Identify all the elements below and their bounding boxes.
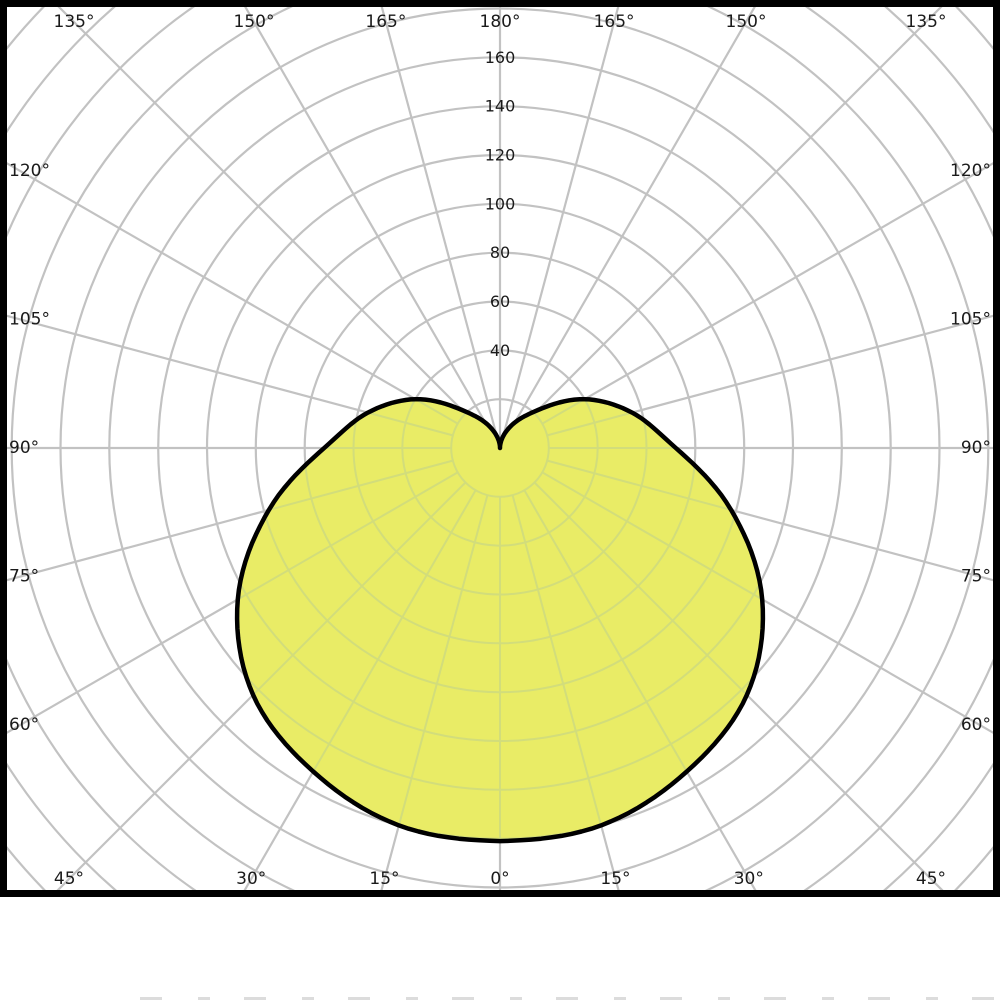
angle-tick-label: 0° bbox=[490, 869, 509, 889]
angle-tick-label: 45° bbox=[54, 869, 84, 889]
photometric-diagram: 4060801001201401600°15°15°30°30°45°45°60… bbox=[0, 0, 1000, 1000]
angle-tick-label: 90° bbox=[961, 438, 991, 458]
angle-tick-label: 150° bbox=[726, 12, 767, 32]
angle-tick-label: 180° bbox=[480, 12, 521, 32]
angle-tick-label: 105° bbox=[950, 309, 991, 329]
angle-tick-label: 120° bbox=[950, 161, 991, 181]
angle-tick-label: 45° bbox=[916, 869, 946, 889]
angle-tick-label: 30° bbox=[734, 869, 764, 889]
angle-tick-label: 75° bbox=[9, 567, 39, 587]
angle-tick-label: 150° bbox=[234, 12, 275, 32]
radial-tick-label: 160 bbox=[485, 48, 516, 67]
polar-chart: 4060801001201401600°15°15°30°30°45°45°60… bbox=[0, 0, 1000, 897]
angle-tick-label: 60° bbox=[961, 715, 991, 735]
angle-tick-label: 165° bbox=[594, 12, 635, 32]
radial-tick-label: 60 bbox=[490, 292, 510, 311]
radial-tick-label: 40 bbox=[490, 341, 510, 360]
angle-tick-label: 135° bbox=[54, 12, 95, 32]
angle-tick-label: 15° bbox=[600, 869, 630, 889]
radial-tick-label: 80 bbox=[490, 243, 510, 262]
angle-tick-label: 60° bbox=[9, 715, 39, 735]
angle-tick-label: 90° bbox=[9, 438, 39, 458]
radial-tick-label: 140 bbox=[485, 97, 516, 116]
angle-tick-label: 75° bbox=[961, 567, 991, 587]
angle-tick-label: 15° bbox=[369, 869, 399, 889]
angle-tick-label: 135° bbox=[906, 12, 947, 32]
angle-tick-label: 120° bbox=[9, 161, 50, 181]
angle-tick-label: 105° bbox=[9, 309, 50, 329]
radial-tick-label: 120 bbox=[485, 146, 516, 165]
chart-footer: cd/klm η =100% C0/C180 C90/C270 bbox=[0, 897, 1000, 1000]
angle-tick-label: 30° bbox=[236, 869, 266, 889]
angle-tick-label: 165° bbox=[365, 12, 406, 32]
radial-tick-label: 100 bbox=[485, 194, 516, 213]
